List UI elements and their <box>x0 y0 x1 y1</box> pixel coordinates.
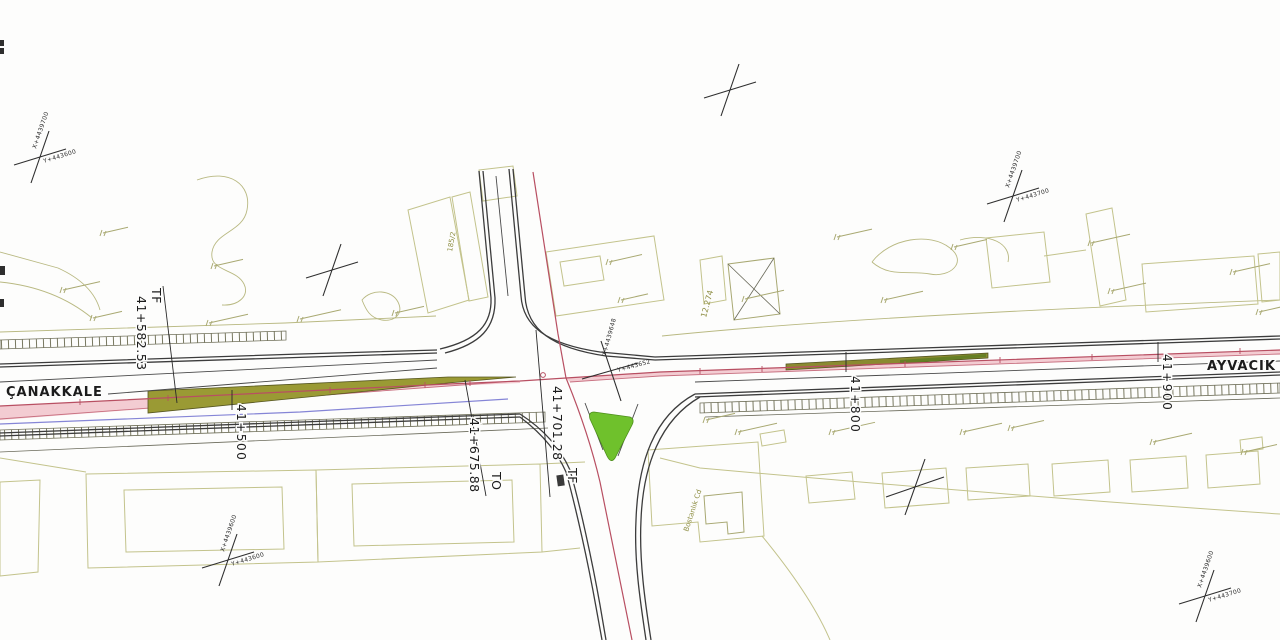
grid-x-label: X+4439600 <box>219 514 238 553</box>
grid-x-label: X+4439600 <box>1196 550 1215 589</box>
grid-cross-plain-1 <box>306 244 358 296</box>
curve-tag-to-mid: TO <box>489 471 504 490</box>
junction-y-label: Y+443652 <box>616 358 652 374</box>
hatch-strip-lower-right <box>700 383 1280 413</box>
centerline-point-marker <box>541 373 546 378</box>
contours-layer <box>0 176 1280 336</box>
grid-cross-top-right: X+4439700 Y+443700 <box>987 150 1050 222</box>
building-brace-icon <box>728 258 780 320</box>
grid-cross-top-left: X+4439700 Y+443600 <box>14 111 77 183</box>
station-label-41-900: 41+900 <box>1160 354 1174 411</box>
station-label-41-800: 41+800 <box>848 376 862 433</box>
curve-chainage-tf-west: 41+582.53 <box>134 296 149 371</box>
grid-cross-plain-2 <box>704 64 756 116</box>
drainage-structure-icon <box>556 474 564 486</box>
plan-drawing-canvas: X+4439700 Y+443600 X+4439700 Y+443700 X+… <box>0 0 1280 640</box>
notched-building-outline <box>704 492 744 534</box>
green-traffic-island <box>590 412 634 461</box>
destination-label-east: AYVACIK <box>1207 359 1276 374</box>
curve-tag-tf-mid: TF <box>565 467 580 484</box>
leader-tf-west <box>163 286 177 403</box>
hatch-strips <box>0 331 1280 440</box>
curve-chainage-tf-mid: 41+701.28 <box>550 386 565 461</box>
junction-x-label: X+4439648 <box>601 317 618 356</box>
curve-chainage-to-mid: 41+675.88 <box>467 418 482 493</box>
side-road-centerline <box>533 172 566 378</box>
offset-annotation: 12.274 <box>699 289 715 318</box>
parcel-number-label: 185/2 <box>446 231 457 252</box>
grid-cross-bottom-right: X+4439600 Y+443700 <box>1179 550 1242 622</box>
road-plan-svg: X+4439700 Y+443600 X+4439700 Y+443700 X+… <box>0 0 1280 640</box>
median-wedge-west <box>148 377 516 413</box>
station-label-41-500: 41+500 <box>234 404 248 461</box>
edge-marks <box>0 40 5 307</box>
destination-label-west: ÇANAKKALE <box>6 385 103 400</box>
curve-tag-tf-west: TF <box>149 287 164 304</box>
grid-cross-plain-3 <box>886 459 944 515</box>
street-name-label: Bostanlık Cd <box>682 489 703 533</box>
grid-x-label: X+4439700 <box>1004 150 1023 189</box>
grid-x-label: X+4439700 <box>31 111 50 150</box>
